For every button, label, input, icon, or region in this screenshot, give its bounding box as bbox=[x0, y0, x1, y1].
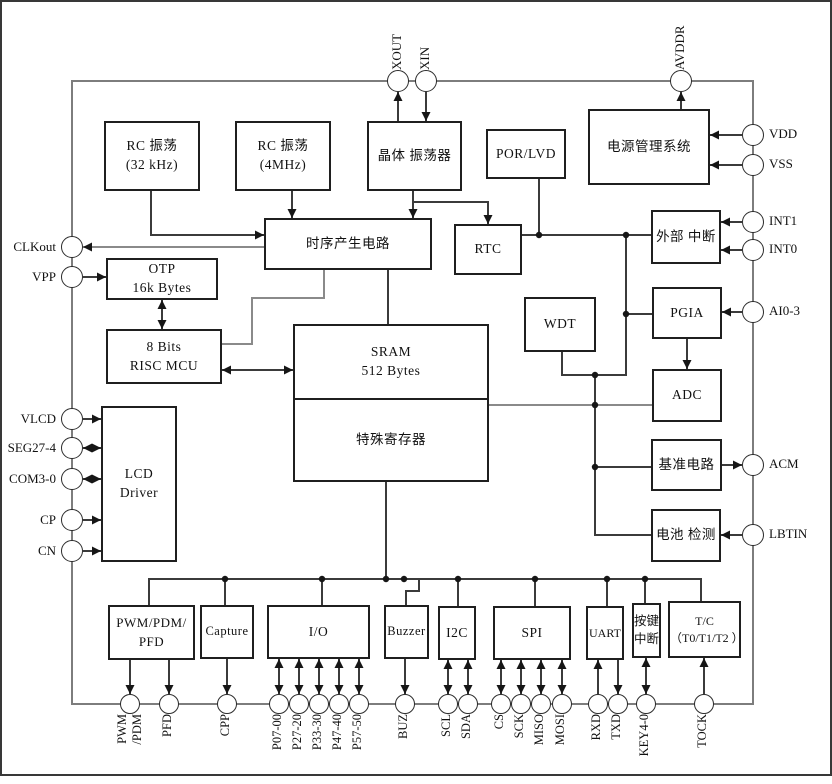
pin-label-buz: BUZ bbox=[397, 714, 413, 784]
pin-rxd bbox=[588, 694, 608, 714]
pin-label-p07-00: P07-00 bbox=[271, 714, 287, 784]
block-spi: SPI bbox=[493, 606, 571, 660]
pin-label-cs: CS bbox=[493, 714, 509, 784]
pin-label-com3-0: COM3-0 bbox=[2, 472, 56, 486]
pin-label-txd: TXD bbox=[610, 714, 626, 784]
pin-label-vpp: VPP bbox=[2, 270, 56, 284]
pin-label-mosi: MOSI bbox=[554, 714, 570, 784]
pin-p27-20 bbox=[289, 694, 309, 714]
block-io: I/O bbox=[267, 605, 370, 659]
pin-int1 bbox=[742, 211, 764, 233]
pin-key4-0 bbox=[636, 694, 656, 714]
pin-avddr bbox=[670, 70, 692, 92]
pin-label-xout: XOUT bbox=[390, 20, 406, 70]
pin-label-lbtin: LBTIN bbox=[769, 527, 832, 541]
pin-label-vdd: VDD bbox=[769, 127, 832, 141]
block-battery-detect: 电池 检测 bbox=[651, 509, 721, 562]
block-buzzer: Buzzer bbox=[384, 605, 429, 659]
pin-buz bbox=[395, 694, 415, 714]
pin-lbtin bbox=[742, 524, 764, 546]
pin-pfd bbox=[159, 694, 179, 714]
pin-label-key4-0: KEY4-0 bbox=[638, 714, 654, 784]
pin-label-cpp: CPP bbox=[219, 714, 235, 784]
block-adc: ADC bbox=[652, 369, 722, 422]
pin-label-sda: SDA bbox=[460, 714, 476, 784]
block-timer-counter: T/C （T0/T1/T2 ） bbox=[668, 601, 741, 658]
block-pgia: PGIA bbox=[652, 287, 722, 339]
pin-label-xin: XIN bbox=[418, 20, 434, 70]
pin-label-p33-30: P33-30 bbox=[311, 714, 327, 784]
block-risc-mcu: 8 Bits RISC MCU bbox=[106, 329, 222, 384]
block-timing-generator: 时序产生电路 bbox=[264, 218, 432, 270]
pin-int0 bbox=[742, 239, 764, 261]
block-reference-circuit: 基准电路 bbox=[651, 439, 722, 491]
pin-label-ai0-3: AI0-3 bbox=[769, 304, 832, 318]
block-capture: Capture bbox=[200, 605, 254, 659]
pin-label-pfd: PFD bbox=[161, 714, 177, 784]
block-por-lvd: POR/LVD bbox=[486, 129, 566, 179]
pin-label-int1: INT1 bbox=[769, 214, 832, 228]
pin-ai0-3 bbox=[742, 301, 764, 323]
block-pwm-pdm-pfd: PWM/PDM/ PFD bbox=[108, 605, 195, 660]
block-otp: OTP 16k Bytes bbox=[106, 258, 218, 300]
pin-pwm-pdm bbox=[120, 694, 140, 714]
pin-com3-0 bbox=[61, 468, 83, 490]
block-sram: SRAM 512 Bytes bbox=[293, 324, 489, 400]
pin-tock bbox=[694, 694, 714, 714]
pin-sda bbox=[458, 694, 478, 714]
block-i2c: I2C bbox=[438, 606, 476, 660]
pin-p07-00 bbox=[269, 694, 289, 714]
pin-p33-30 bbox=[309, 694, 329, 714]
pin-label-sck: SCK bbox=[513, 714, 529, 784]
pin-label-acm: ACM bbox=[769, 457, 832, 471]
mcu-block-diagram: RC 振荡 (32 kHz) RC 振荡 (4MHz) 晶体 振荡器 POR/L… bbox=[0, 0, 832, 776]
pin-label-scl: SCL bbox=[440, 714, 456, 784]
pin-p57-50 bbox=[349, 694, 369, 714]
block-rc-osc-32k: RC 振荡 (32 kHz) bbox=[104, 121, 200, 191]
block-rtc: RTC bbox=[454, 224, 522, 275]
block-rc-osc-4m: RC 振荡 (4MHz) bbox=[235, 121, 331, 191]
pin-txd bbox=[608, 694, 628, 714]
pin-miso bbox=[531, 694, 551, 714]
block-power-management: 电源管理系统 bbox=[588, 109, 710, 185]
pin-cpp bbox=[217, 694, 237, 714]
pin-scl bbox=[438, 694, 458, 714]
pin-label-cp: CP bbox=[2, 513, 56, 527]
pin-label-clkout: CLKout bbox=[2, 240, 56, 254]
pin-label-avddr: AVDDR bbox=[673, 20, 689, 70]
pin-xout bbox=[387, 70, 409, 92]
pin-vlcd bbox=[61, 408, 83, 430]
pin-label-seg27-4: SEG27-4 bbox=[2, 441, 56, 455]
pin-vpp bbox=[61, 266, 83, 288]
pin-label-tock: TOCK bbox=[696, 714, 712, 784]
block-external-interrupt: 外部 中断 bbox=[651, 210, 721, 264]
pin-label-vlcd: VLCD bbox=[2, 412, 56, 426]
pin-cn bbox=[61, 540, 83, 562]
pin-clkout bbox=[61, 236, 83, 258]
pin-label-rxd: RXD bbox=[590, 714, 606, 784]
block-special-registers: 特殊寄存器 bbox=[293, 398, 489, 482]
pin-label-vss: VSS bbox=[769, 157, 832, 171]
pin-label-p27-20: P27-20 bbox=[291, 714, 307, 784]
block-lcd-driver: LCD Driver bbox=[101, 406, 177, 562]
pin-cp bbox=[61, 509, 83, 531]
pin-vss bbox=[742, 154, 764, 176]
pin-label-p57-50: P57-50 bbox=[351, 714, 367, 784]
block-key-interrupt: 按键 中断 bbox=[632, 603, 661, 658]
pin-p47-40 bbox=[329, 694, 349, 714]
pin-label-cn: CN bbox=[2, 544, 56, 558]
block-crystal-osc: 晶体 振荡器 bbox=[367, 121, 462, 191]
pin-label-int0: INT0 bbox=[769, 242, 832, 256]
block-uart: UART bbox=[586, 606, 624, 660]
pin-vdd bbox=[742, 124, 764, 146]
pin-xin bbox=[415, 70, 437, 92]
pin-label-miso: MISO bbox=[533, 714, 549, 784]
pin-seg27-4 bbox=[61, 437, 83, 459]
pin-label-pwm-pdm: PWM /PDM bbox=[115, 714, 145, 784]
block-wdt: WDT bbox=[524, 297, 596, 352]
pin-mosi bbox=[552, 694, 572, 714]
pin-sck bbox=[511, 694, 531, 714]
pin-cs bbox=[491, 694, 511, 714]
pin-acm bbox=[742, 454, 764, 476]
pin-label-p47-40: P47-40 bbox=[331, 714, 347, 784]
